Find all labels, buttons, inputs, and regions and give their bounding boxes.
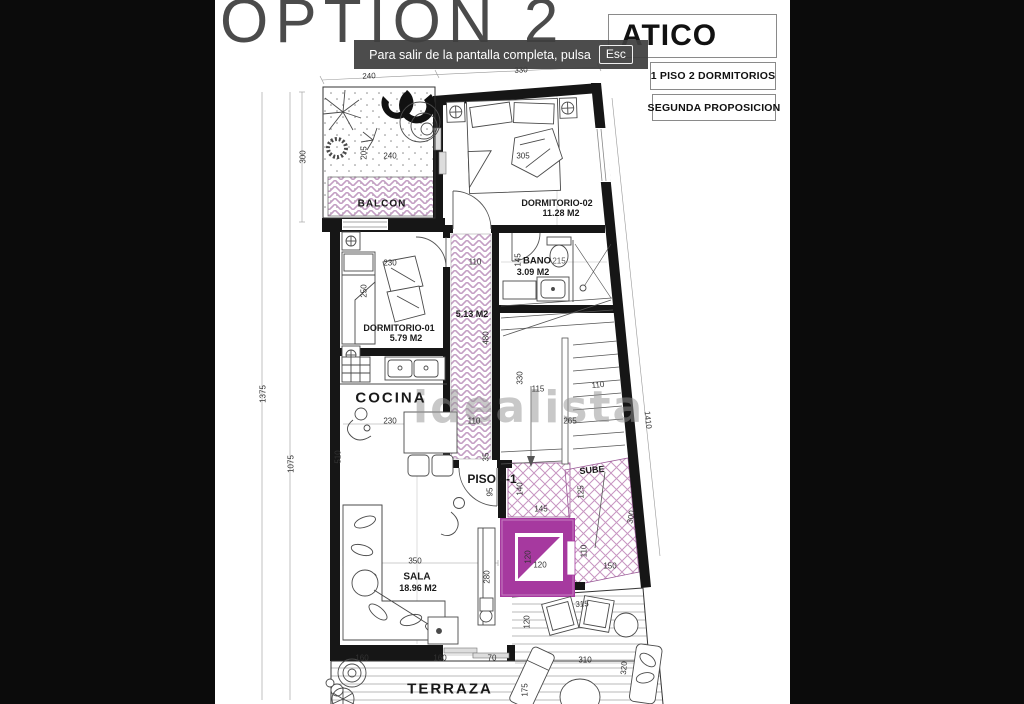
dimension-label: 215 [552,257,565,266]
dimension-label: 230 [383,417,396,426]
dimension-label: 350 [408,557,421,566]
watermark: idealista [413,382,644,433]
fullscreen-exit-message: Para salir de la pantalla completa, puls… [369,48,591,62]
dimension-label: 1075 [287,455,296,473]
dimension-label: 510 [334,450,343,463]
dimension-label: 240 [362,71,376,81]
dimension-label: 140 [516,482,525,495]
fullscreen-image-viewer[interactable]: OPTION 2 [0,0,1024,704]
spec-box: 1 PISO 2 DORMITORIOS [650,62,776,90]
dimension-label: 95 [486,488,495,497]
area-label-bano: 3.09 M2 [517,267,550,277]
esc-key-hint: Esc [599,45,633,64]
room-label-terraza: TERRAZA [407,681,493,698]
dimension-label: 310 [578,656,591,665]
dimension-label: 175 [521,683,530,696]
dimension-label: 120 [524,550,533,563]
dimension-label: 230 [383,259,396,268]
room-label-dormitorio-01: DORMITORIO-01 [363,323,434,333]
dimension-label: 205 [360,146,369,159]
dimension-label: 120 [533,561,546,570]
area-label-sala: 18.96 M2 [399,583,437,593]
dimension-label: 480 [482,331,491,344]
dimension-label: 1410 [643,411,654,430]
dimension-label: 160 [355,654,368,663]
dimension-label: 145 [534,505,547,514]
dimension-label: 300 [299,150,308,163]
dimension-label: 115 [532,385,545,394]
dimension-label: 1375 [259,385,268,403]
proposal-box: SEGUNDA PROPOSICION [652,94,776,121]
dimension-label: 280 [483,570,492,583]
fullscreen-exit-notice: Para salir de la pantalla completa, puls… [354,40,648,69]
dimension-label: 250 [360,284,369,297]
elevator [500,518,575,597]
area-label-dormitorio-02: 11.28 M2 [542,208,579,218]
dimension-label: 70 [488,654,497,663]
dimension-label: 110 [469,258,482,267]
dimension-label: 160 [433,654,446,663]
dimension-label: 35 [482,453,491,462]
dimension-label: 110 [580,545,589,558]
dimension-label: 265 [563,417,576,426]
dimension-label: 150 [603,562,616,571]
dimension-label: 145 [514,253,523,266]
room-label-dormitorio-02: DORMITORIO-02 [521,198,592,208]
dimension-label: 120 [523,615,532,628]
dimension-label: 110 [591,380,605,390]
area-label-dormitorio-01: 5.79 M2 [390,333,423,343]
dimension-label: 125 [577,485,586,498]
dimension-label: 315 [575,599,589,609]
dimension-label: 330 [516,371,525,384]
room-label-balcon: BALCON [358,199,407,210]
floor-plan-image: OPTION 2 [215,0,790,704]
area-label-pasillo: 5.13 M2 [456,309,489,319]
proposal-text: SEGUNDA PROPOSICION [648,102,781,114]
room-label-sala: SALA [403,572,430,583]
room-label-piso: PISO 4-1 [467,472,516,486]
dimension-label: 320 [619,661,629,675]
room-label-cocina: COCINA [355,390,426,407]
spec-text: 1 PISO 2 DORMITORIOS [651,70,776,82]
dimension-label: 110 [468,417,481,426]
room-label-bano: BANO [523,256,551,267]
dimension-label: 240 [383,152,396,161]
dimension-label: 305 [516,152,529,161]
